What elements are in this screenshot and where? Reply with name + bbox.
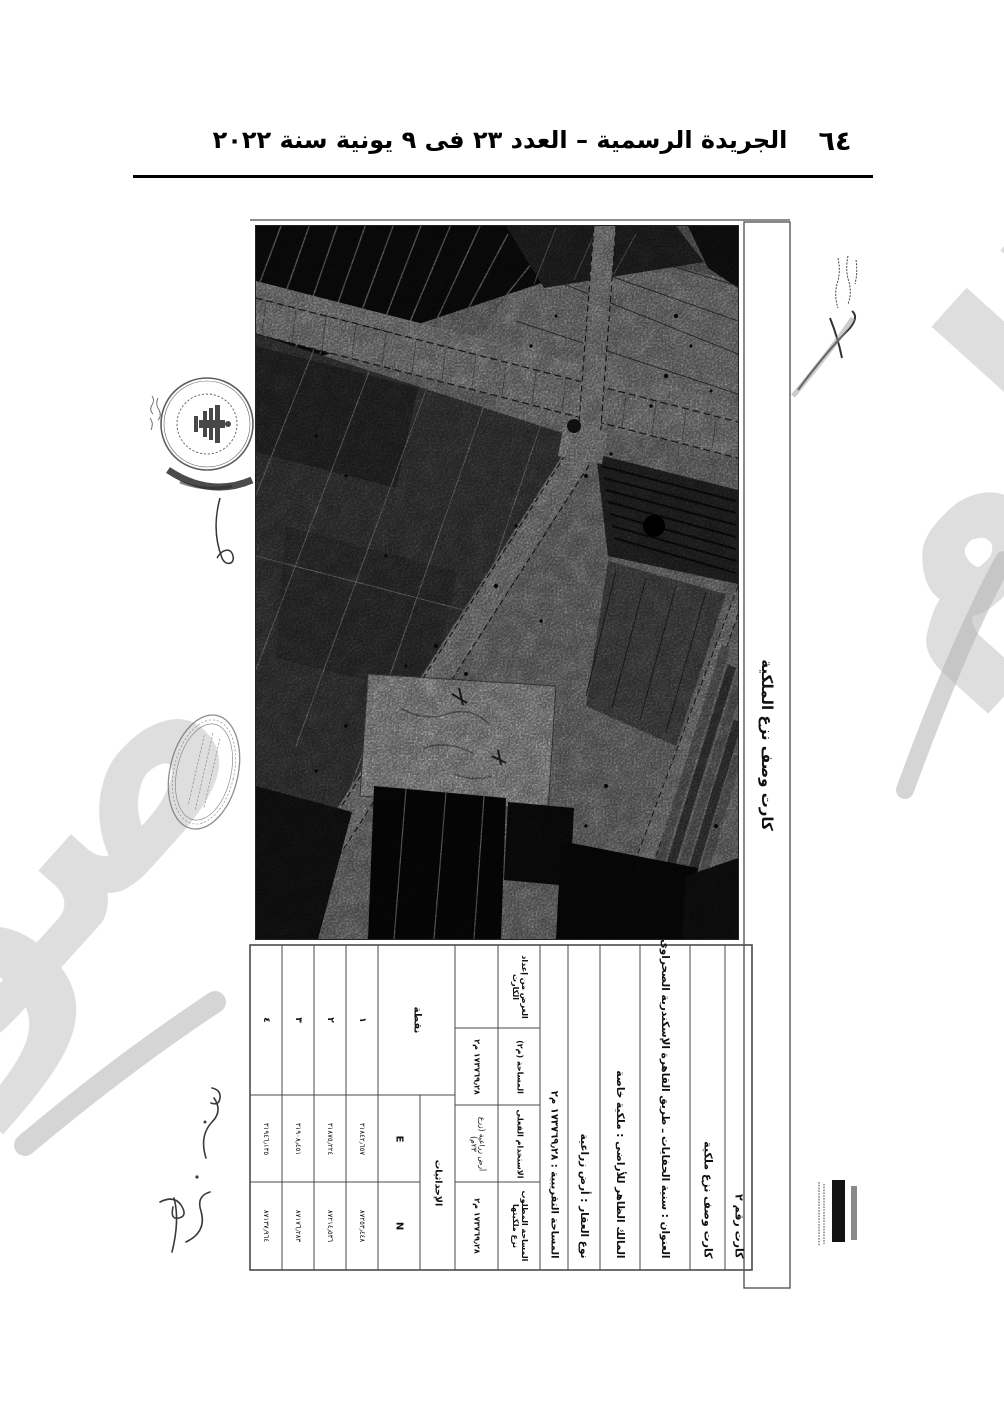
- handwritten-note: [160, 1088, 220, 1252]
- top-right-stamp: [793, 256, 857, 396]
- stamps-layer: [0, 0, 1004, 1417]
- signature-smudge: [168, 470, 252, 488]
- bottom-right-stamp: [819, 1180, 857, 1246]
- signature-mark: [216, 498, 233, 563]
- stamp-side-note: [150, 396, 160, 430]
- eagle-stamp: [150, 378, 253, 470]
- stamp-bar-dark: [832, 1180, 845, 1242]
- gazette-page: الم صو الجريدة الرسمية – العدد ٢٣ فى ٩ ي…: [0, 0, 1004, 1417]
- oval-stamp: [158, 708, 250, 836]
- stamp-bar-light: [851, 1186, 857, 1240]
- eagle-emblem-icon: [194, 405, 231, 443]
